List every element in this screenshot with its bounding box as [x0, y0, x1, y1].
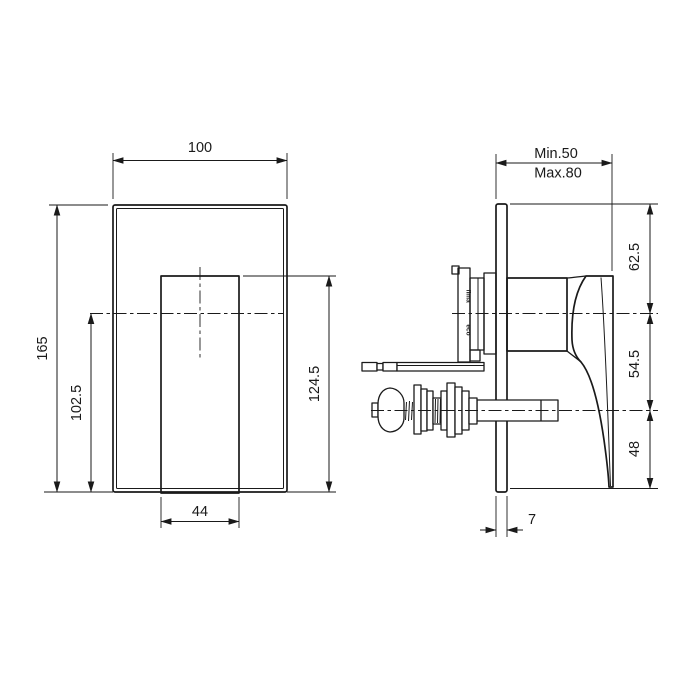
- knob-tip: [372, 403, 378, 417]
- dim-label-handle-height: 124.5: [307, 366, 323, 402]
- knob-disc: [421, 389, 427, 431]
- dim-label-depth-min: Min.50: [534, 146, 578, 162]
- side-plate: [496, 204, 507, 492]
- side-view: fima eco: [362, 146, 658, 537]
- series-marking: eco: [465, 324, 472, 335]
- dim-label-axis-to-bottom-side: 48: [627, 441, 643, 457]
- knob-bulb: [378, 388, 404, 432]
- dim-label-plate-thickness: 7: [528, 512, 536, 528]
- cartridge-lower-step: [470, 350, 480, 361]
- dim-label-axis-to-axis: 54.5: [627, 350, 643, 378]
- thread-line: [412, 402, 413, 420]
- dim-label-handle-width: 44: [192, 504, 208, 520]
- thread-line: [406, 402, 407, 420]
- rough-body-box: [458, 268, 470, 362]
- dim-label-plate-width: 100: [188, 140, 212, 156]
- knob-hub: [469, 398, 477, 424]
- body-lever-transition-top: [567, 276, 586, 278]
- dim-label-top-to-axis: 62.5: [627, 243, 643, 271]
- thread-line: [435, 399, 436, 423]
- knob-disc: [414, 385, 421, 434]
- knob-flange: [447, 383, 455, 437]
- bracket-end-cap: [362, 363, 377, 372]
- bracket-step: [377, 364, 383, 371]
- dim-label-axis-to-bottom: 102.5: [69, 385, 85, 421]
- thread-line: [438, 399, 439, 423]
- drawing-svg: 100 165 102.5 124.5 44 fima eco: [0, 0, 700, 700]
- dim-label-plate-height: 165: [35, 336, 51, 360]
- dim-label-depth-max: Max.80: [534, 166, 582, 182]
- bracket-bar: [397, 363, 484, 372]
- thread-line: [409, 401, 410, 421]
- bracket-step-2: [383, 363, 397, 372]
- technical-drawing-canvas: 100 165 102.5 124.5 44 fima eco: [0, 0, 700, 700]
- brand-marking: fima: [465, 289, 472, 303]
- handle-body: [507, 278, 567, 351]
- front-view: 100 165 102.5 124.5 44: [35, 140, 336, 528]
